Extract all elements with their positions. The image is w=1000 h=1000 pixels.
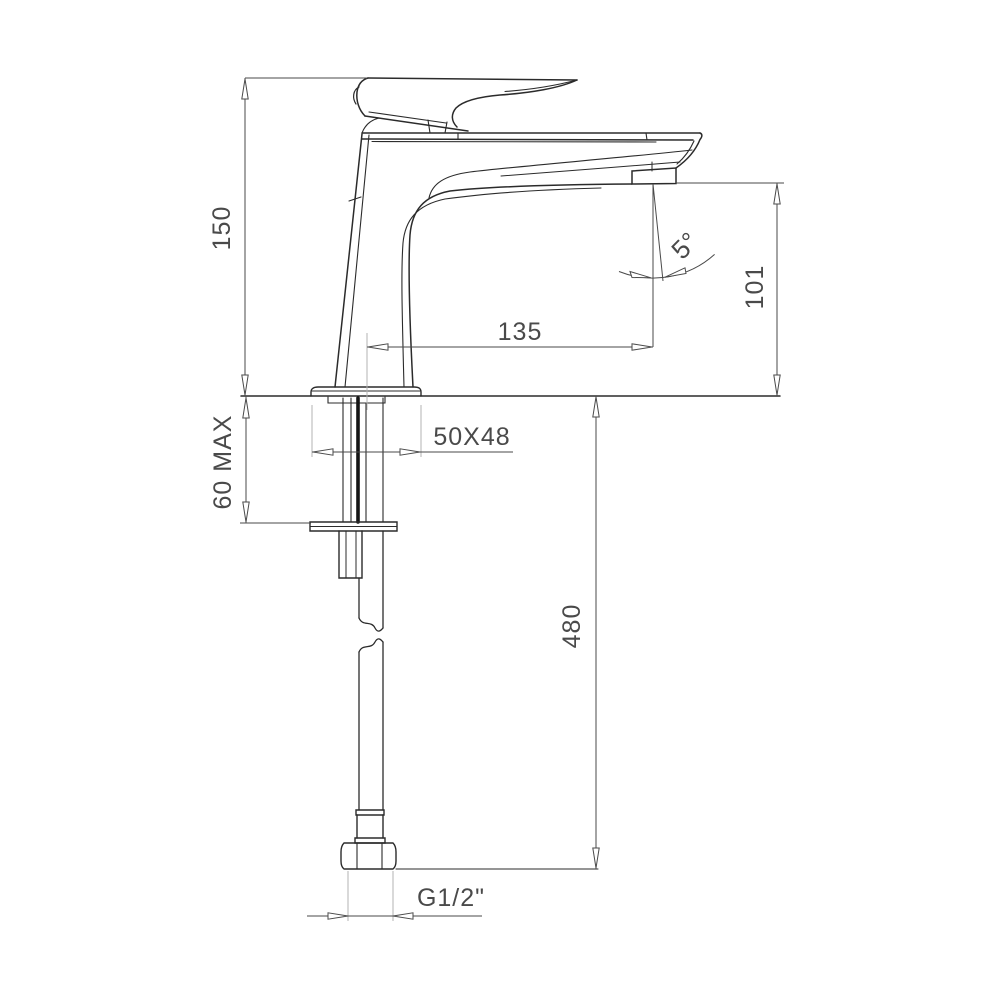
cartridge-wedge (362, 118, 379, 133)
label-spout-height: 150 (208, 206, 236, 251)
threaded-shank (343, 398, 383, 522)
arrow-150-top (242, 79, 248, 99)
body-deck (362, 133, 702, 168)
arrow-60max-top (243, 398, 249, 418)
arrow-50x48-left (313, 449, 333, 455)
arrow-g12-left (328, 913, 348, 919)
arrow-angle-right (665, 268, 686, 277)
arrow-480-bottom (593, 848, 599, 868)
dimension-arrows (242, 79, 780, 919)
label-spout-to-counter: 101 (741, 265, 769, 310)
arrow-135-right (632, 344, 652, 350)
arrow-150-bottom (242, 375, 248, 395)
faucet-outline (241, 78, 780, 869)
label-mounting-thickness: 60 MAX (209, 415, 237, 510)
hose-break-lower (359, 639, 383, 652)
arrow-480-top (593, 397, 599, 417)
arrow-101-top (774, 184, 780, 204)
arrow-50x48-right (400, 449, 420, 455)
label-hose-length: 480 (558, 604, 586, 649)
technical-drawing-canvas: 150 60 MAX 135 101 480 50X48 5° G1/2" (0, 0, 1000, 1000)
arrow-135-left (368, 344, 388, 350)
base-plate (311, 387, 421, 403)
dimension-labels: 150 60 MAX 135 101 480 50X48 5° G1/2" (208, 206, 769, 912)
arrow-101-bottom (774, 375, 780, 395)
connector-hex-nut (341, 810, 396, 869)
arrow-60max-bottom (243, 502, 249, 522)
faucet-drawing: 150 60 MAX 135 101 480 50X48 5° G1/2" (0, 0, 1000, 1000)
label-connection-thread: G1/2" (417, 884, 485, 912)
arrow-g12-right (393, 913, 413, 919)
mounting-washer (310, 522, 397, 578)
hose-break-upper (359, 618, 383, 631)
lever-handle (354, 78, 577, 133)
dimension-lines (240, 78, 784, 916)
label-spout-reach: 135 (498, 318, 543, 346)
label-stream-angle: 5° (665, 226, 704, 265)
stream-tilted-line (653, 184, 663, 281)
arrow-angle-left (630, 272, 651, 278)
label-base-footprint: 50X48 (433, 423, 510, 451)
